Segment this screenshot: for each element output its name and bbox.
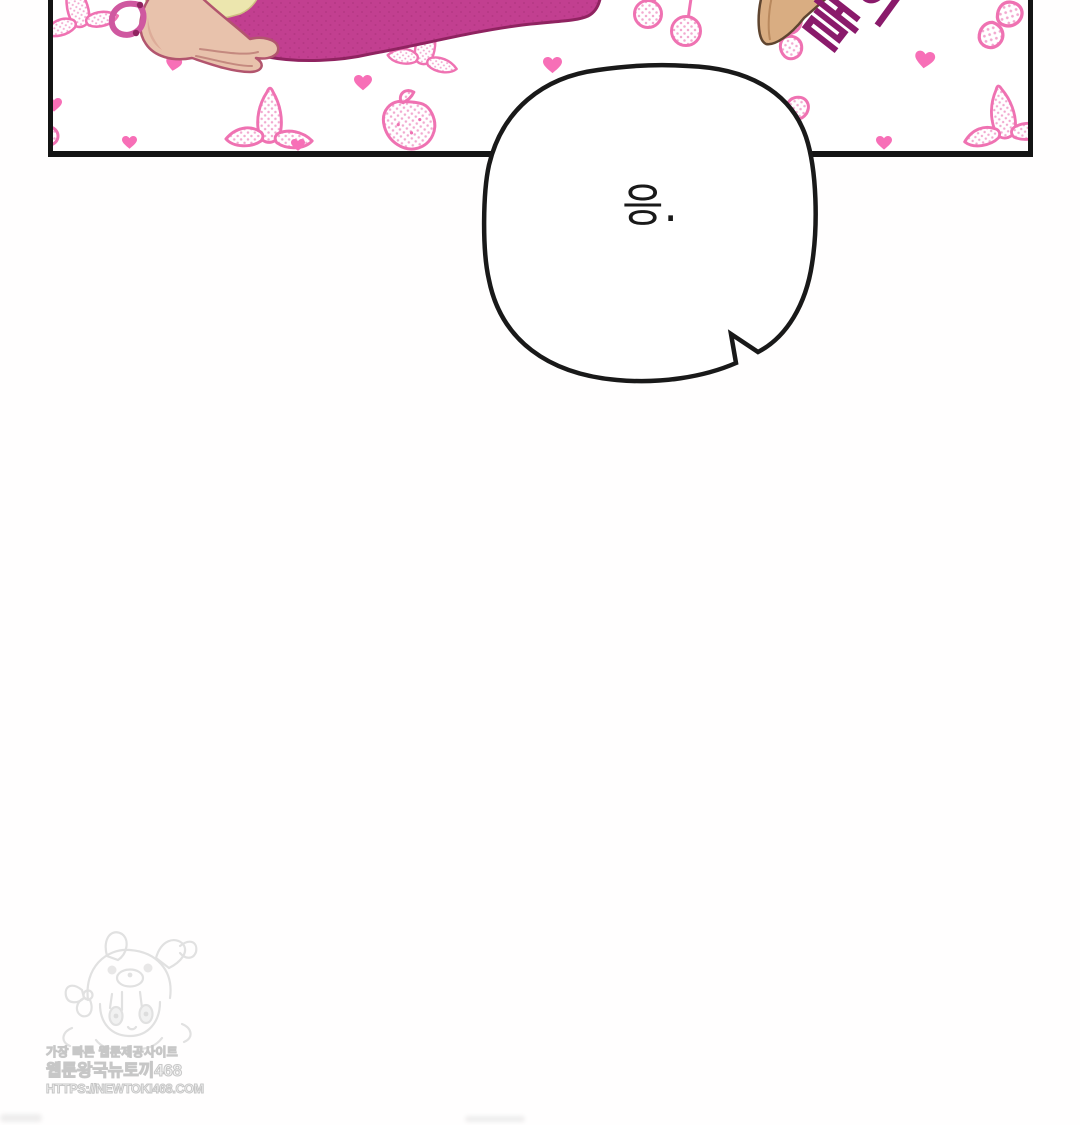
speech-bubble-text: 응. [578,181,722,241]
loop-end [133,30,139,36]
loop-end [137,2,143,8]
heart-icon [122,136,137,149]
scan-smudge [465,1116,525,1122]
pattern-dot [53,127,58,145]
watermark-sitename: 웹툰왕국뉴토끼468 [46,1060,216,1081]
peeled-banana-icon [226,88,312,148]
site-watermark: 가장 빠른 웹툰제공사이트 웹툰왕국뉴토끼468 HTTPS://NEWTOKI… [46,1044,216,1098]
watermark-tagline: 가장 빠른 웹툰제공사이트 [46,1044,216,1060]
heart-icon [53,98,62,112]
heart-icon [354,75,372,90]
peeled-banana-icon [956,79,1028,150]
banana-slice-icon [975,0,1026,55]
cherries-icon [635,0,701,46]
webtoon-page: 놀 이 응. 가장 빠른 웹툰제공사이트 웹툰왕국뉴토끼468 HTTPS://… [0,0,1080,1125]
scan-smudge [0,1114,42,1122]
watermark-mascot-icon [52,928,202,1050]
heart-icon [876,136,892,150]
watermark-url: HTTPS://NEWTOKI468.COM [46,1081,216,1098]
strawberry-icon [380,87,438,152]
heart-icon [914,50,936,70]
